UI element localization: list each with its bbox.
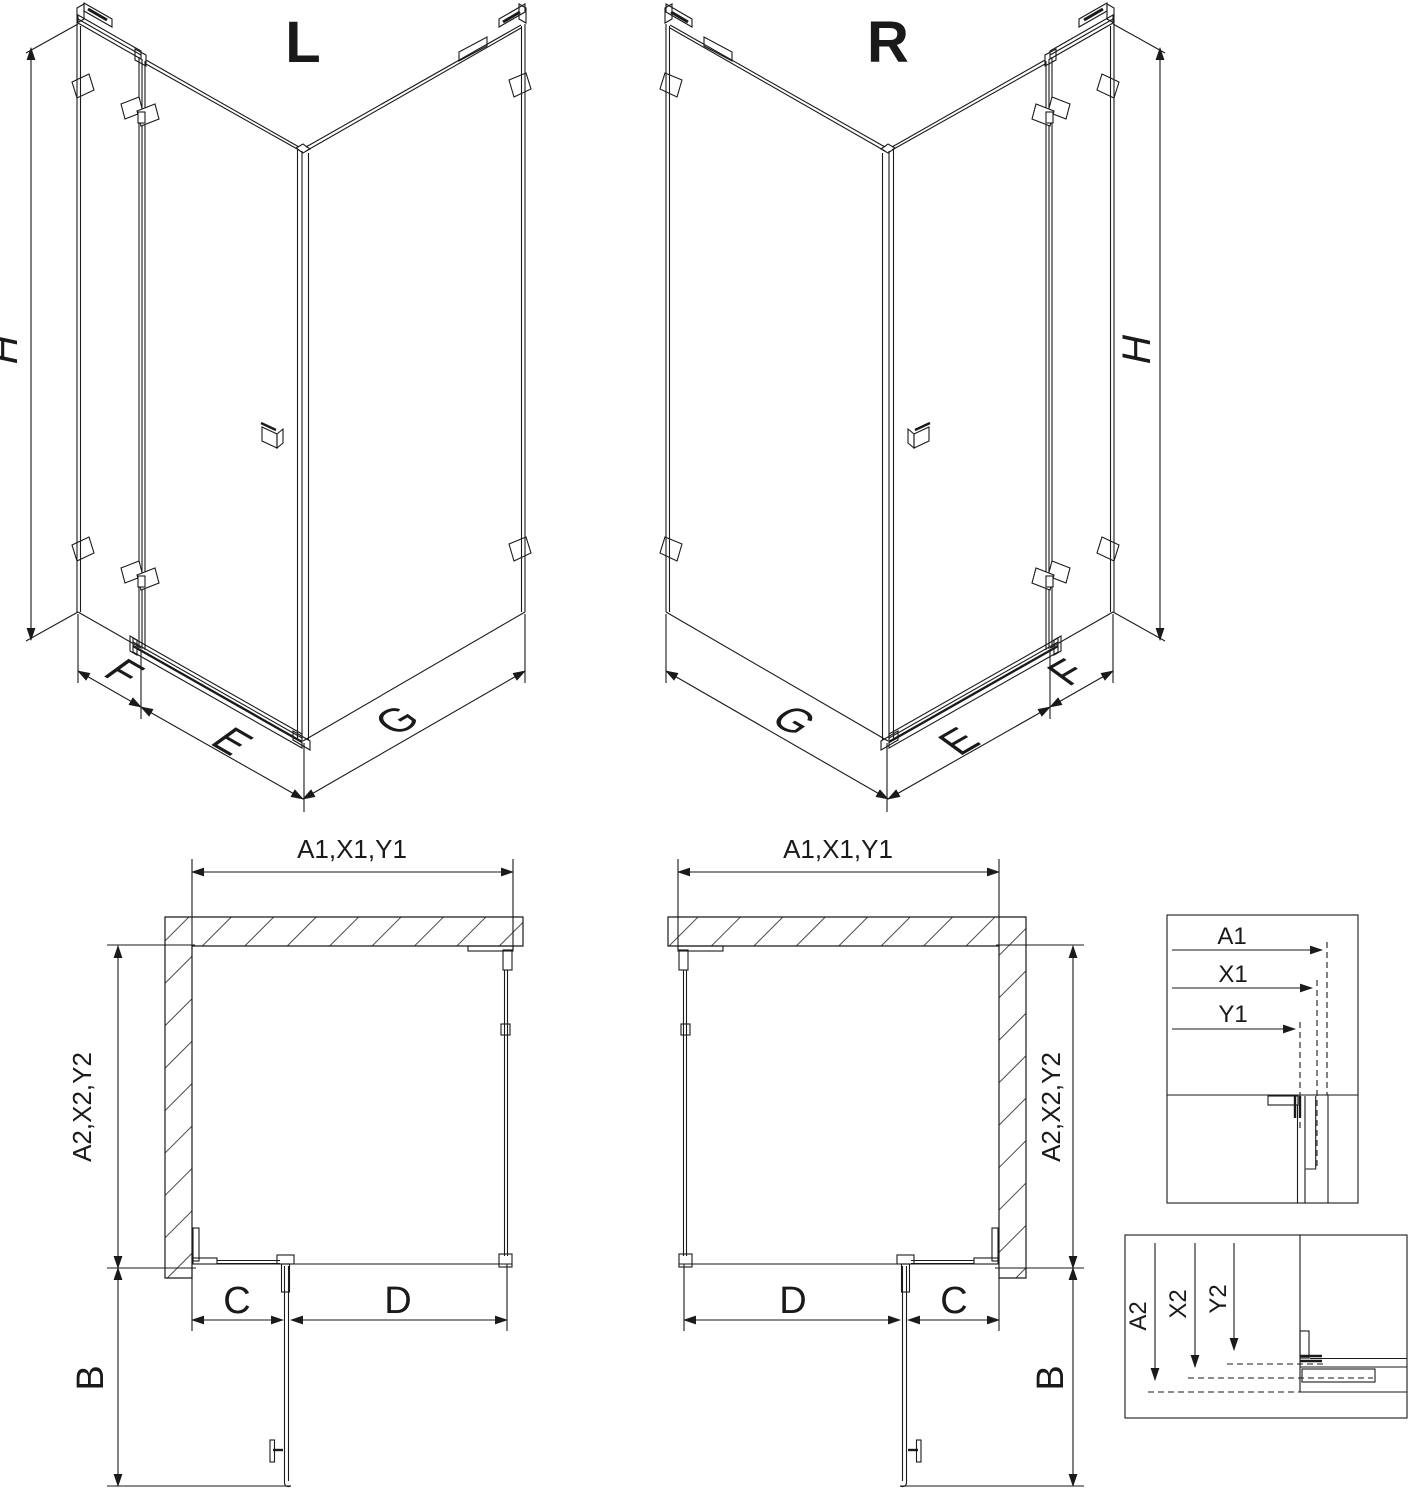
technical-drawing-page: L R H H F E G F E G A1,X1,Y1 A1,X1,Y1 A2…: [0, 0, 1416, 1497]
dim-label-door-left: E: [201, 720, 264, 762]
dim-label-c-right: C: [940, 1280, 967, 1322]
dim-label-d-right: D: [779, 1280, 806, 1322]
dim-label-side-left: G: [363, 698, 430, 742]
view-label-right: R: [867, 10, 909, 75]
detail-box-widths: [1167, 915, 1358, 1203]
plan-depth-label-left: A2,X2,Y2: [67, 1052, 97, 1162]
dim-label-d-left: D: [384, 1280, 411, 1322]
detail-label-y1: Y1: [1218, 1001, 1247, 1028]
detail-label-a2: A2: [1125, 1301, 1152, 1330]
detail-label-y2: Y2: [1205, 1284, 1232, 1313]
view-label-left: L: [285, 10, 320, 75]
masonry-wall-left-plan: [165, 917, 523, 1278]
dim-label-height-right: H: [1113, 330, 1158, 369]
dim-label-c-left: C: [223, 1280, 250, 1322]
plan-depth-label-right: A2,X2,Y2: [1036, 1052, 1066, 1162]
plan-width-label-right: A1,X1,Y1: [783, 834, 893, 864]
dim-label-side-right: G: [761, 698, 828, 742]
dim-label-b-right: B: [1030, 1365, 1072, 1390]
right-version-views: [660, 3, 1165, 1487]
plan-width-label-left: A1,X1,Y1: [297, 834, 407, 864]
dim-label-height-left: H: [0, 330, 26, 369]
dim-label-door-right: E: [927, 720, 990, 762]
dim-label-fixed-right: F: [1036, 652, 1097, 693]
detail-box-depths: [1125, 1235, 1407, 1418]
dim-label-b-left: B: [70, 1365, 112, 1390]
detail-label-a1: A1: [1217, 923, 1246, 950]
masonry-wall-right-plan: [668, 917, 1026, 1278]
shower-enclosure-dimension-drawing: L R H H F E G F E G A1,X1,Y1 A1,X1,Y1 A2…: [0, 0, 1416, 1497]
left-version-views: [26, 3, 531, 1487]
detail-label-x2: X2: [1165, 1289, 1192, 1318]
detail-label-x1: X1: [1218, 961, 1247, 988]
dim-label-fixed-left: F: [94, 652, 155, 693]
